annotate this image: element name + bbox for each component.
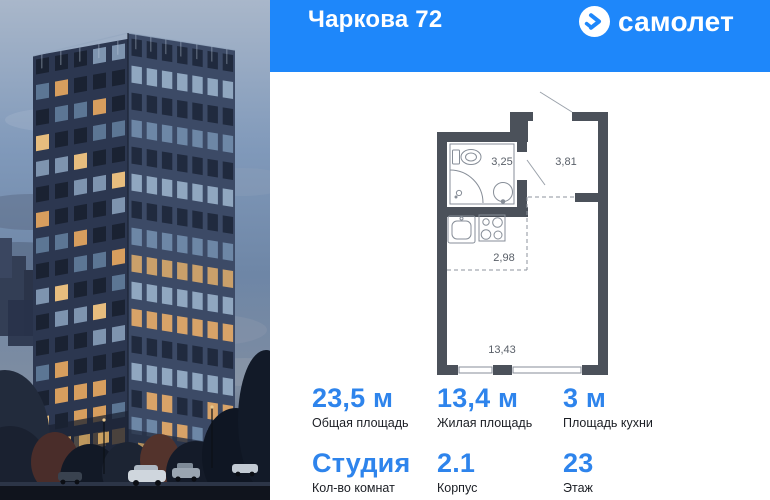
stat-label: Кол-во комнат [312,481,410,495]
bathroom-fixtures [450,144,514,204]
plan-windows [458,365,582,376]
bathroom-area-label: 3,25 [491,156,512,168]
stat-rooms: Студия Кол-во комнат [312,449,410,495]
plan-doors [527,92,572,185]
kitchen-fixtures [448,215,505,243]
kitchen-area-label: 2,98 [493,252,514,264]
stat-kitchen-area: 3 м Площадь кухни [563,384,653,430]
page-title: Чаркова 72 [308,6,442,34]
stat-value: 13,4 м [437,384,532,412]
samolet-arrow-icon [579,6,610,37]
stat-building: 2.1 Корпус [437,449,477,495]
stat-floor: 23 Этаж [563,449,593,495]
stat-label: Площадь кухни [563,416,653,430]
stat-value: 23 [563,449,593,477]
stat-label: Жилая площадь [437,416,532,430]
stat-living-area: 13,4 м Жилая площадь [437,384,532,430]
stat-total-area: 23,5 м Общая площадь [312,384,409,430]
tower [33,33,235,484]
brand-logo: самолет [579,6,734,37]
stat-label: Корпус [437,481,477,495]
brand-name: самолет [618,6,734,37]
stat-value: 23,5 м [312,384,409,412]
listing-card: Чаркова 72 самолет [270,0,770,500]
stat-label: Этаж [563,481,593,495]
floor-plan: 3,25 3,81 2,98 13,43 [425,85,610,382]
stat-label: Общая площадь [312,416,409,430]
stat-value: 3 м [563,384,653,412]
header: Чаркова 72 самолет [270,0,770,72]
hallway-area-label: 3,81 [555,156,576,168]
living-area-label: 13,43 [488,344,516,356]
stat-value: Студия [312,449,410,477]
stat-value: 2.1 [437,449,477,477]
building-photo [0,0,270,500]
